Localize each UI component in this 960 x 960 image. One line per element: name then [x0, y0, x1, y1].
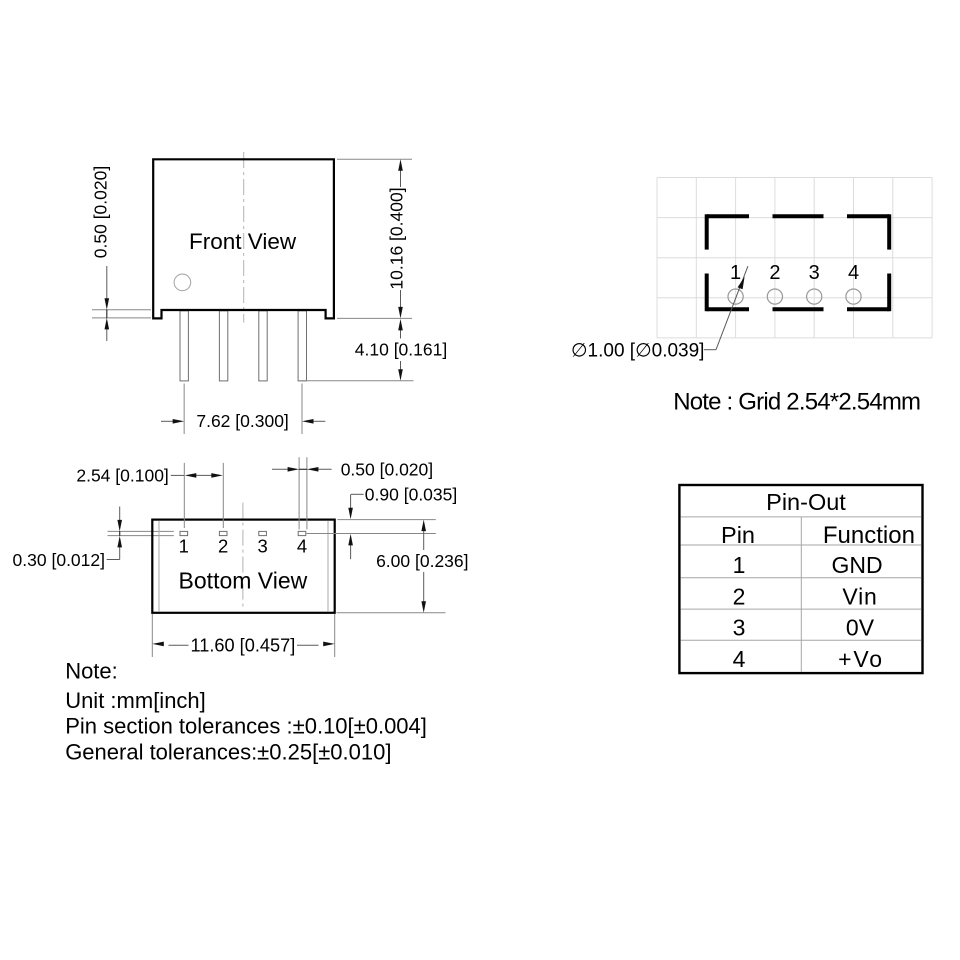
svg-text:7.62 [0.300]: 7.62 [0.300] — [196, 411, 288, 431]
svg-text:+Vo: +Vo — [838, 646, 884, 672]
svg-text:Unit :mm[inch]: Unit :mm[inch] — [65, 688, 206, 713]
svg-text:∅1.00 [∅0.039]: ∅1.00 [∅0.039] — [571, 341, 704, 362]
svg-text:Function: Function — [823, 522, 915, 549]
svg-text:1: 1 — [179, 536, 189, 557]
svg-text:2.54 [0.100]: 2.54 [0.100] — [76, 466, 168, 486]
svg-text:4.10 [0.161]: 4.10 [0.161] — [355, 339, 447, 359]
svg-text:11.60 [0.457]: 11.60 [0.457] — [190, 635, 295, 655]
svg-text:4: 4 — [733, 646, 746, 672]
svg-text:2: 2 — [769, 262, 780, 284]
svg-text:3: 3 — [809, 262, 820, 284]
svg-text:0.90 [0.035]: 0.90 [0.035] — [365, 485, 457, 505]
svg-text:2: 2 — [733, 583, 746, 609]
svg-text:Vin: Vin — [842, 583, 877, 609]
svg-text:Pin-Out: Pin-Out — [766, 489, 846, 515]
svg-text:GND: GND — [831, 552, 882, 578]
svg-text:3: 3 — [257, 536, 267, 557]
svg-text:Pin section tolerances :±0.10[: Pin section tolerances :±0.10[±0.004] — [65, 713, 427, 738]
svg-text:0.30 [0.012]: 0.30 [0.012] — [13, 550, 105, 570]
svg-text:Note:: Note: — [65, 658, 118, 683]
svg-text:0.50 [0.020]: 0.50 [0.020] — [91, 166, 111, 258]
svg-text:Pin: Pin — [721, 522, 755, 548]
svg-text:Note : Grid 2.54*2.54mm: Note : Grid 2.54*2.54mm — [673, 389, 920, 416]
svg-text:6.00 [0.236]: 6.00 [0.236] — [376, 551, 468, 571]
svg-text:4: 4 — [848, 262, 859, 284]
svg-text:General tolerances:±0.25[±0.01: General tolerances:±0.25[±0.010] — [65, 739, 391, 764]
svg-text:2: 2 — [218, 536, 228, 557]
svg-text:0V: 0V — [846, 615, 875, 641]
svg-text:1: 1 — [733, 552, 746, 578]
svg-text:Front View: Front View — [189, 229, 297, 254]
svg-text:Bottom View: Bottom View — [179, 568, 308, 594]
svg-text:3: 3 — [733, 615, 746, 641]
svg-text:4: 4 — [297, 536, 307, 557]
svg-text:1: 1 — [730, 262, 741, 284]
svg-text:0.50 [0.020]: 0.50 [0.020] — [341, 460, 433, 480]
svg-text:10.16 [0.400]: 10.16 [0.400] — [387, 187, 407, 289]
